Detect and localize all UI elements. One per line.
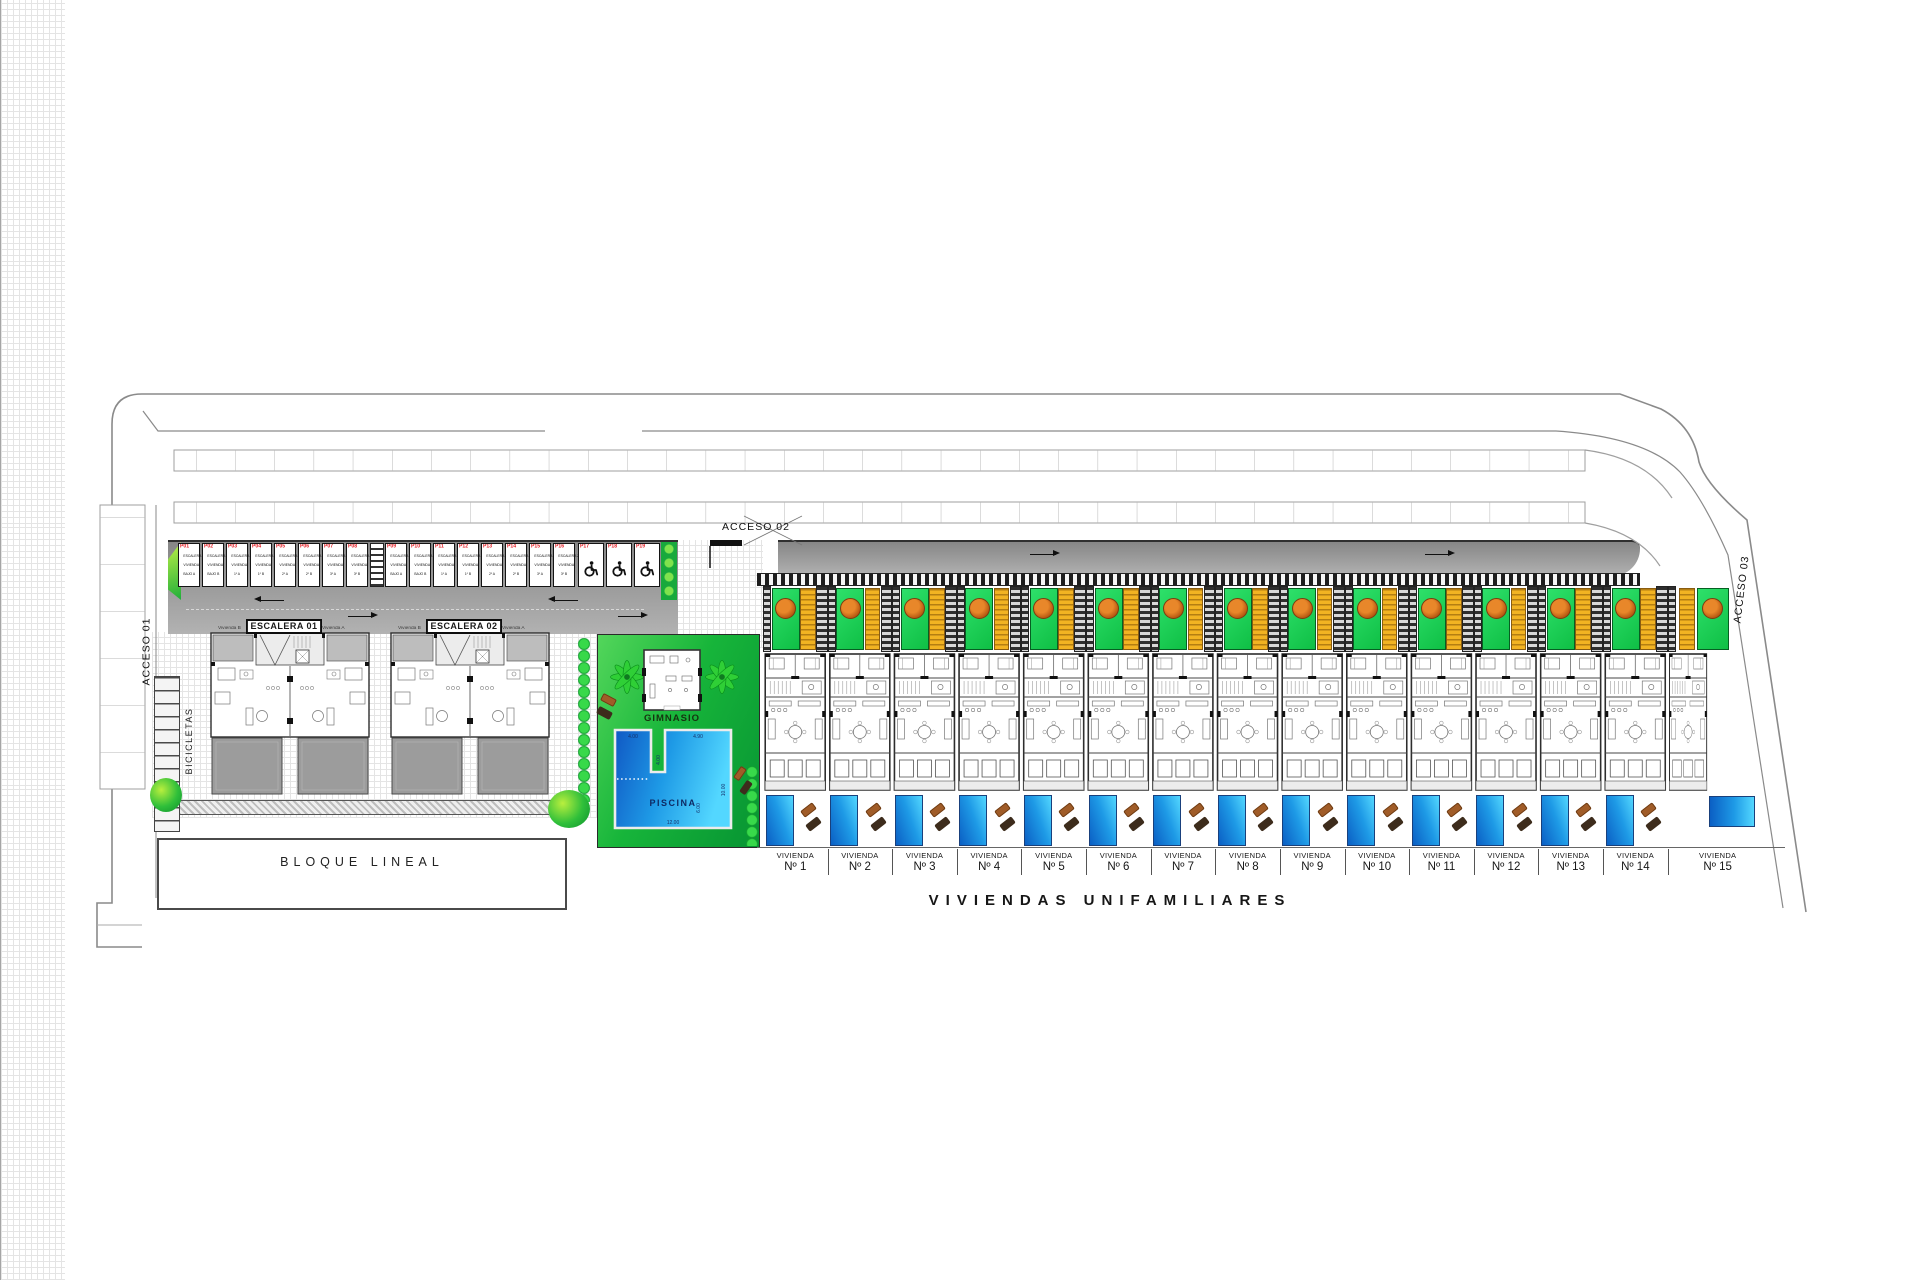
parking-stall-P08: P08ESCALERA 1VIVIENDA3º B <box>346 543 368 587</box>
driveway-hatch-icon <box>1086 586 1094 652</box>
driveway-hatch-icon <box>1333 586 1345 652</box>
vivienda-word: VIVIENDA <box>828 851 893 860</box>
driveway-hatch-icon <box>1268 586 1280 652</box>
stall-number: P01 <box>180 544 189 549</box>
driveway-hatch-icon <box>816 586 828 652</box>
vivienda-label-3: VIVIENDANº 3 <box>892 851 957 873</box>
stall-number: P07 <box>324 544 333 549</box>
label-separator-tick <box>1474 849 1475 875</box>
driveway-hatch-icon <box>763 586 771 652</box>
vivienda-number: Nº 8 <box>1215 861 1280 873</box>
tree-icon <box>1486 598 1507 619</box>
private-pool <box>959 795 987 846</box>
tree-icon <box>969 598 990 619</box>
vivienda-label-9: VIVIENDANº 9 <box>1280 851 1345 873</box>
stall-number: P18 <box>608 544 617 549</box>
vivienda-number: Nº 6 <box>1086 861 1151 873</box>
stall-text-line: ESCALERA 2 <box>486 554 497 559</box>
stall-text-line: BAJO B <box>414 572 425 577</box>
vivienda-word: VIVIENDA <box>1668 851 1768 860</box>
pergola-strip <box>1058 588 1074 650</box>
pergola-strip <box>929 588 945 650</box>
apartment-unit-label: Vivienda B <box>398 626 421 631</box>
traffic-arrow-right-icon <box>1425 554 1451 555</box>
stall-number: P05 <box>276 544 285 549</box>
pergola-strip <box>1317 588 1333 650</box>
parking-stall-P10: P10ESCALERA 2VIVIENDABAJO B <box>409 543 431 587</box>
traffic-arrow-left-icon <box>552 600 578 601</box>
private-pool <box>895 795 923 846</box>
stair-divider-icon <box>370 543 384 587</box>
vivienda-number: Nº 14 <box>1603 861 1668 873</box>
stall-text-line: VIVIENDA <box>390 563 401 568</box>
pergola-strip <box>865 588 881 650</box>
sun-lounger-icon <box>1516 816 1533 832</box>
private-pool <box>1153 795 1181 846</box>
parking-stall-P04: P04ESCALERA 1VIVIENDA1º B <box>250 543 272 587</box>
label-separator-tick <box>1668 849 1669 875</box>
vivienda-label-11: VIVIENDANº 11 <box>1409 851 1474 873</box>
parking-stall-P02: P02ESCALERA 1VIVIENDABAJO B <box>202 543 224 587</box>
driveway-hatch-icon <box>1398 586 1410 652</box>
sun-lounger-icon <box>1576 802 1593 818</box>
tree-icon <box>1702 598 1723 619</box>
wheelchair-icon <box>583 561 599 577</box>
parking-stall-P07: P07ESCALERA 1VIVIENDA3º A <box>322 543 344 587</box>
stall-text-line: 1º A <box>231 572 242 577</box>
vivienda-word: VIVIENDA <box>1280 851 1345 860</box>
vivienda-label-7: VIVIENDANº 7 <box>1151 851 1216 873</box>
stall-number: P14 <box>507 544 516 549</box>
vivienda-label-15: VIVIENDANº 15 <box>1668 851 1768 873</box>
vivienda-number: Nº 12 <box>1474 861 1539 873</box>
sun-lounger-icon <box>1257 816 1274 832</box>
label-separator-tick <box>1538 849 1539 875</box>
hedge-strip-icon <box>661 542 677 600</box>
stall-text-line: 3º A <box>534 572 545 577</box>
vivienda-word: VIVIENDA <box>1409 851 1474 860</box>
sun-lounger-icon <box>1252 802 1269 818</box>
vivienda-plot-3 <box>0 524 65 786</box>
stall-text-line: VIVIENDA <box>462 563 473 568</box>
sun-lounger-icon <box>929 802 946 818</box>
communal-garden <box>597 634 760 848</box>
pergola-strip <box>1640 588 1656 650</box>
tree-icon <box>840 598 861 619</box>
vivienda-label-10: VIVIENDANº 10 <box>1345 851 1410 873</box>
parking-stall-P11: P11ESCALERA 2VIVIENDA1º A <box>433 543 455 587</box>
driveway-hatch-icon <box>1474 586 1482 652</box>
driveway-hatch-icon <box>881 586 893 652</box>
stall-text-line: ESCALERA 1 <box>303 554 314 559</box>
private-pool <box>1541 795 1569 846</box>
stall-number: P04 <box>252 544 261 549</box>
viviendas-road <box>778 540 1640 576</box>
private-pool <box>1347 795 1375 846</box>
escalera-01-sign: ESCALERA 01 <box>246 619 322 634</box>
stall-text-line: VIVIENDA <box>207 563 218 568</box>
hedge-right-icon <box>746 766 759 846</box>
driveway-hatch-icon <box>957 586 965 652</box>
stall-number: P13 <box>483 544 492 549</box>
stall-text-line: VIVIENDA <box>414 563 425 568</box>
stall-text-line: VIVIENDA <box>486 563 497 568</box>
vivienda-label-1: VIVIENDANº 1 <box>763 851 828 873</box>
pergola-strip <box>994 588 1010 650</box>
driveway-hatch-icon <box>1591 586 1603 652</box>
bush-icon <box>150 778 182 812</box>
sun-lounger-icon <box>1317 802 1334 818</box>
parking-stall-P16: P16ESCALERA 2VIVIENDA3º B <box>553 543 575 587</box>
stall-text-line: 3º B <box>351 572 362 577</box>
gimnasio-label: GIMNASIO <box>620 713 724 725</box>
page-title: VIVIENDAS UNIFAMILIARES <box>820 892 1400 914</box>
vivienda-word: VIVIENDA <box>1151 851 1216 860</box>
driveway-hatch-icon <box>1538 586 1546 652</box>
stall-text-line: VIVIENDA <box>231 563 242 568</box>
acceso02-plaza-grid <box>677 540 763 648</box>
label-separator-tick <box>1021 849 1022 875</box>
tree-icon <box>1098 598 1119 619</box>
vivienda-word: VIVIENDA <box>1215 851 1280 860</box>
label-separator-tick <box>1280 849 1281 875</box>
vivienda-label-4: VIVIENDANº 4 <box>957 851 1022 873</box>
sun-lounger-icon <box>1188 802 1205 818</box>
parking-stall-P14: P14ESCALERA 2VIVIENDA2º B <box>505 543 527 587</box>
sun-lounger-icon <box>805 816 822 832</box>
sidewalk-crosswalk-band <box>757 573 1640 586</box>
sun-lounger-icon <box>1640 802 1657 818</box>
stall-number: P06 <box>300 544 309 549</box>
driveway-hatch-icon <box>945 586 957 652</box>
label-separator-tick <box>957 849 958 875</box>
private-pool <box>1218 795 1246 846</box>
driveway-hatch-icon <box>1215 586 1223 652</box>
stall-text-line: VIVIENDA <box>351 563 362 568</box>
stall-number: P02 <box>204 544 213 549</box>
stall-text-line: VIVIENDA <box>327 563 338 568</box>
stall-text-line: ESCALERA 1 <box>231 554 242 559</box>
stall-text-line: ESCALERA 2 <box>462 554 473 559</box>
stall-text-line: ESCALERA 1 <box>351 554 362 559</box>
private-pool <box>1476 795 1504 846</box>
stall-text-line: ESCALERA 2 <box>414 554 425 559</box>
sun-lounger-icon <box>1382 802 1399 818</box>
vivienda-plot-4 <box>0 786 65 1048</box>
sun-lounger-icon <box>1064 816 1081 832</box>
acceso-01-label: ACCESO 01 <box>141 597 154 707</box>
sun-lounger-icon <box>934 816 951 832</box>
stall-text-line: 1º A <box>438 572 449 577</box>
driveway-hatch-icon <box>1021 586 1029 652</box>
vivienda-label-13: VIVIENDANº 13 <box>1538 851 1603 873</box>
label-separator-tick <box>828 849 829 875</box>
parking-stall-P17: P17 <box>578 543 604 587</box>
sun-lounger-icon <box>1128 816 1145 832</box>
vivienda-label-8: VIVIENDANº 8 <box>1215 851 1280 873</box>
driveway-hatch-icon <box>1668 586 1676 652</box>
parking-stall-P12: P12ESCALERA 2VIVIENDA1º B <box>457 543 479 587</box>
bush-icon <box>548 790 590 828</box>
vivienda-number: Nº 3 <box>892 861 957 873</box>
vivienda-word: VIVIENDA <box>892 851 957 860</box>
vivienda-word: VIVIENDA <box>1474 851 1539 860</box>
stall-text-line: VIVIENDA <box>510 563 521 568</box>
driveway-hatch-icon <box>1527 586 1539 652</box>
plots-bottom-line <box>757 847 1785 848</box>
tree-icon <box>1357 598 1378 619</box>
driveway-hatch-icon <box>1462 586 1474 652</box>
stall-text-line: ESCALERA 1 <box>279 554 290 559</box>
stall-text-line: BAJO A <box>390 572 401 577</box>
sun-lounger-icon <box>1387 816 1404 832</box>
stall-text-line: 2º A <box>279 572 290 577</box>
pergola-strip <box>800 588 816 650</box>
stall-text-line: 1º B <box>462 572 473 577</box>
parking-stall-P03: P03ESCALERA 1VIVIENDA1º A <box>226 543 248 587</box>
stall-number: P10 <box>411 544 420 549</box>
acceso-02-label: ACCESO 02 <box>706 521 806 534</box>
label-separator-tick <box>1151 849 1152 875</box>
stall-text-line: VIVIENDA <box>438 563 449 568</box>
vivienda-plot-1 <box>0 0 65 262</box>
sun-lounger-icon <box>994 802 1011 818</box>
private-pool <box>830 795 858 846</box>
pergola-strip <box>1446 588 1462 650</box>
traffic-arrow-right-icon <box>1030 554 1056 555</box>
private-pool <box>766 795 794 846</box>
wheelchair-icon <box>611 561 627 577</box>
vivienda-label-5: VIVIENDANº 5 <box>1021 851 1086 873</box>
vivienda-word: VIVIENDA <box>1345 851 1410 860</box>
private-pool <box>1024 795 1052 846</box>
stall-text-line: ESCALERA 1 <box>327 554 338 559</box>
parking-stall-P13: P13ESCALERA 2VIVIENDA2º A <box>481 543 503 587</box>
stall-text-line: VIVIENDA <box>558 563 569 568</box>
stall-number: P12 <box>459 544 468 549</box>
stall-text-line: VIVIENDA <box>255 563 266 568</box>
vivienda-plot-2 <box>0 262 65 524</box>
stall-number: P16 <box>555 544 564 549</box>
parking-stall-P15: P15ESCALERA 2VIVIENDA3º A <box>529 543 551 587</box>
bloque-ground-grid <box>152 632 597 818</box>
driveway-hatch-icon <box>1204 586 1216 652</box>
vivienda-word: VIVIENDA <box>1086 851 1151 860</box>
stall-number: P11 <box>435 544 444 549</box>
private-pool <box>1412 795 1440 846</box>
vivienda-label-2: VIVIENDANº 2 <box>828 851 893 873</box>
stall-text-line: ESCALERA 2 <box>438 554 449 559</box>
driveway-hatch-icon <box>1409 586 1417 652</box>
vivienda-label-6: VIVIENDANº 6 <box>1086 851 1151 873</box>
private-pool <box>1606 795 1634 846</box>
sun-lounger-icon <box>1193 816 1210 832</box>
apartment-unit-label: Vivienda B <box>218 626 241 631</box>
sun-lounger-icon <box>1123 802 1140 818</box>
stall-text-line: ESCALERA 2 <box>558 554 569 559</box>
sun-lounger-icon <box>870 816 887 832</box>
sun-lounger-icon <box>800 802 817 818</box>
stall-text-line: ESCALERA 1 <box>255 554 266 559</box>
vivienda-number: Nº 13 <box>1538 861 1603 873</box>
private-pool <box>1709 796 1755 827</box>
label-separator-tick <box>1086 849 1087 875</box>
stall-text-line: ESCALERA 1 <box>207 554 218 559</box>
vivienda-label-14: VIVIENDANº 14 <box>1603 851 1668 873</box>
stall-text-line: 2º B <box>510 572 521 577</box>
stall-text-line: ESCALERA 1 <box>183 554 194 559</box>
stall-number: P03 <box>228 544 237 549</box>
vivienda-number: Nº 4 <box>957 861 1022 873</box>
driveway-hatch-icon <box>1010 586 1022 652</box>
site-plan-canvas: 4.00 4.90 4.00 10.00 6.00 12.00 PISCINA … <box>0 0 1920 1280</box>
sidewalk-hatch-band <box>156 800 566 815</box>
vivienda-word: VIVIENDA <box>763 851 828 860</box>
traffic-arrow-left-icon <box>258 600 284 601</box>
vivienda-number: Nº 11 <box>1409 861 1474 873</box>
stall-text-line: ESCALERA 2 <box>534 554 545 559</box>
stall-number: P15 <box>531 544 540 549</box>
sun-lounger-icon <box>1059 802 1076 818</box>
stall-text-line: ESCALERA 2 <box>510 554 521 559</box>
stall-text-line: 2º B <box>303 572 314 577</box>
traffic-arrow-right-icon <box>348 616 374 617</box>
stall-text-line: 2º A <box>486 572 497 577</box>
parking-stall-P06: P06ESCALERA 1VIVIENDA2º B <box>298 543 320 587</box>
driveway-hatch-icon <box>892 586 900 652</box>
label-separator-tick <box>892 849 893 875</box>
vivienda-label-12: VIVIENDANº 12 <box>1474 851 1539 873</box>
vivienda-number: Nº 7 <box>1151 861 1216 873</box>
sun-lounger-icon <box>1581 816 1598 832</box>
parking-stall-P09: P09ESCALERA 2VIVIENDABAJO A <box>385 543 407 587</box>
vivienda-number: Nº 15 <box>1668 861 1768 873</box>
pergola-strip <box>1382 588 1398 650</box>
sun-lounger-icon <box>1446 802 1463 818</box>
stall-text-line: BAJO B <box>207 572 218 577</box>
stall-text-line: 3º A <box>327 572 338 577</box>
stall-number: P19 <box>636 544 645 549</box>
bloque-lineal-label-box: BLOQUE LINEAL <box>157 838 567 910</box>
driveway-hatch-icon <box>1345 586 1353 652</box>
stall-text-line: ESCALERA 2 <box>390 554 401 559</box>
stall-number: P08 <box>348 544 357 549</box>
road-centerline <box>186 609 644 610</box>
stall-text-line: 1º B <box>255 572 266 577</box>
vivienda-word: VIVIENDA <box>1021 851 1086 860</box>
pergola-strip <box>1123 588 1139 650</box>
wheelchair-icon <box>639 561 655 577</box>
driveway-hatch-icon <box>1280 586 1288 652</box>
driveway-hatch-icon <box>1603 586 1611 652</box>
label-separator-tick <box>1345 849 1346 875</box>
stall-text-line: VIVIENDA <box>534 563 545 568</box>
driveway-hatch-icon <box>1139 586 1151 652</box>
label-separator-tick <box>1409 849 1410 875</box>
pergola-strip <box>1575 588 1591 650</box>
vivienda-word: VIVIENDA <box>957 851 1022 860</box>
stall-text-line: 3º B <box>558 572 569 577</box>
sun-lounger-icon <box>1645 816 1662 832</box>
tree-icon <box>1615 598 1636 619</box>
private-pool <box>1089 795 1117 846</box>
parking-stall-P19: P19 <box>634 543 660 587</box>
traffic-arrow-right-icon <box>618 616 644 617</box>
driveway-hatch-icon <box>1151 586 1159 652</box>
stall-number: P09 <box>387 544 396 549</box>
pergola-strip <box>1679 588 1695 650</box>
sun-lounger-icon <box>865 802 882 818</box>
stall-text-line: BAJO A <box>183 572 194 577</box>
sun-lounger-icon <box>999 816 1016 832</box>
pergola-strip <box>1511 588 1527 650</box>
driveway-hatch-icon <box>1656 586 1668 652</box>
escalera-02-sign: ESCALERA 02 <box>426 619 502 634</box>
sun-lounger-icon <box>1511 802 1528 818</box>
tree-icon <box>1163 598 1184 619</box>
apartment-unit-label: Vivienda A <box>322 626 345 631</box>
parking-stall-P18: P18 <box>606 543 632 587</box>
vivienda-number: Nº 1 <box>763 861 828 873</box>
pergola-strip <box>1188 588 1204 650</box>
vivienda-plot-5 <box>0 1048 65 1280</box>
sun-lounger-icon <box>1322 816 1339 832</box>
stall-text-line: VIVIENDA <box>279 563 290 568</box>
vivienda-number: Nº 9 <box>1280 861 1345 873</box>
vivienda-number: Nº 5 <box>1021 861 1086 873</box>
label-separator-tick <box>1603 849 1604 875</box>
sun-lounger-icon <box>1451 816 1468 832</box>
stall-number: P17 <box>580 544 589 549</box>
tree-icon <box>1292 598 1313 619</box>
vivienda-word: VIVIENDA <box>1538 851 1603 860</box>
label-separator-tick <box>1215 849 1216 875</box>
driveway-hatch-icon <box>1074 586 1086 652</box>
hedge-left-icon <box>578 638 591 802</box>
stall-text-line: VIVIENDA <box>183 563 194 568</box>
private-pool <box>1282 795 1310 846</box>
parking-stall-P01: P01ESCALERA 1VIVIENDABAJO A <box>178 543 200 587</box>
pergola-strip <box>1252 588 1268 650</box>
vivienda-word: VIVIENDA <box>1603 851 1668 860</box>
vivienda-number: Nº 10 <box>1345 861 1410 873</box>
stall-text-line: VIVIENDA <box>303 563 314 568</box>
parking-stall-P05: P05ESCALERA 1VIVIENDA2º A <box>274 543 296 587</box>
driveway-hatch-icon <box>828 586 836 652</box>
bicicletas-label: BICICLETAS <box>184 686 196 796</box>
tree-icon <box>775 598 796 619</box>
vivienda-number: Nº 2 <box>828 861 893 873</box>
apartment-unit-label: Vivienda A <box>502 626 525 631</box>
bloque-lineal-label: BLOQUE LINEAL <box>280 855 444 869</box>
